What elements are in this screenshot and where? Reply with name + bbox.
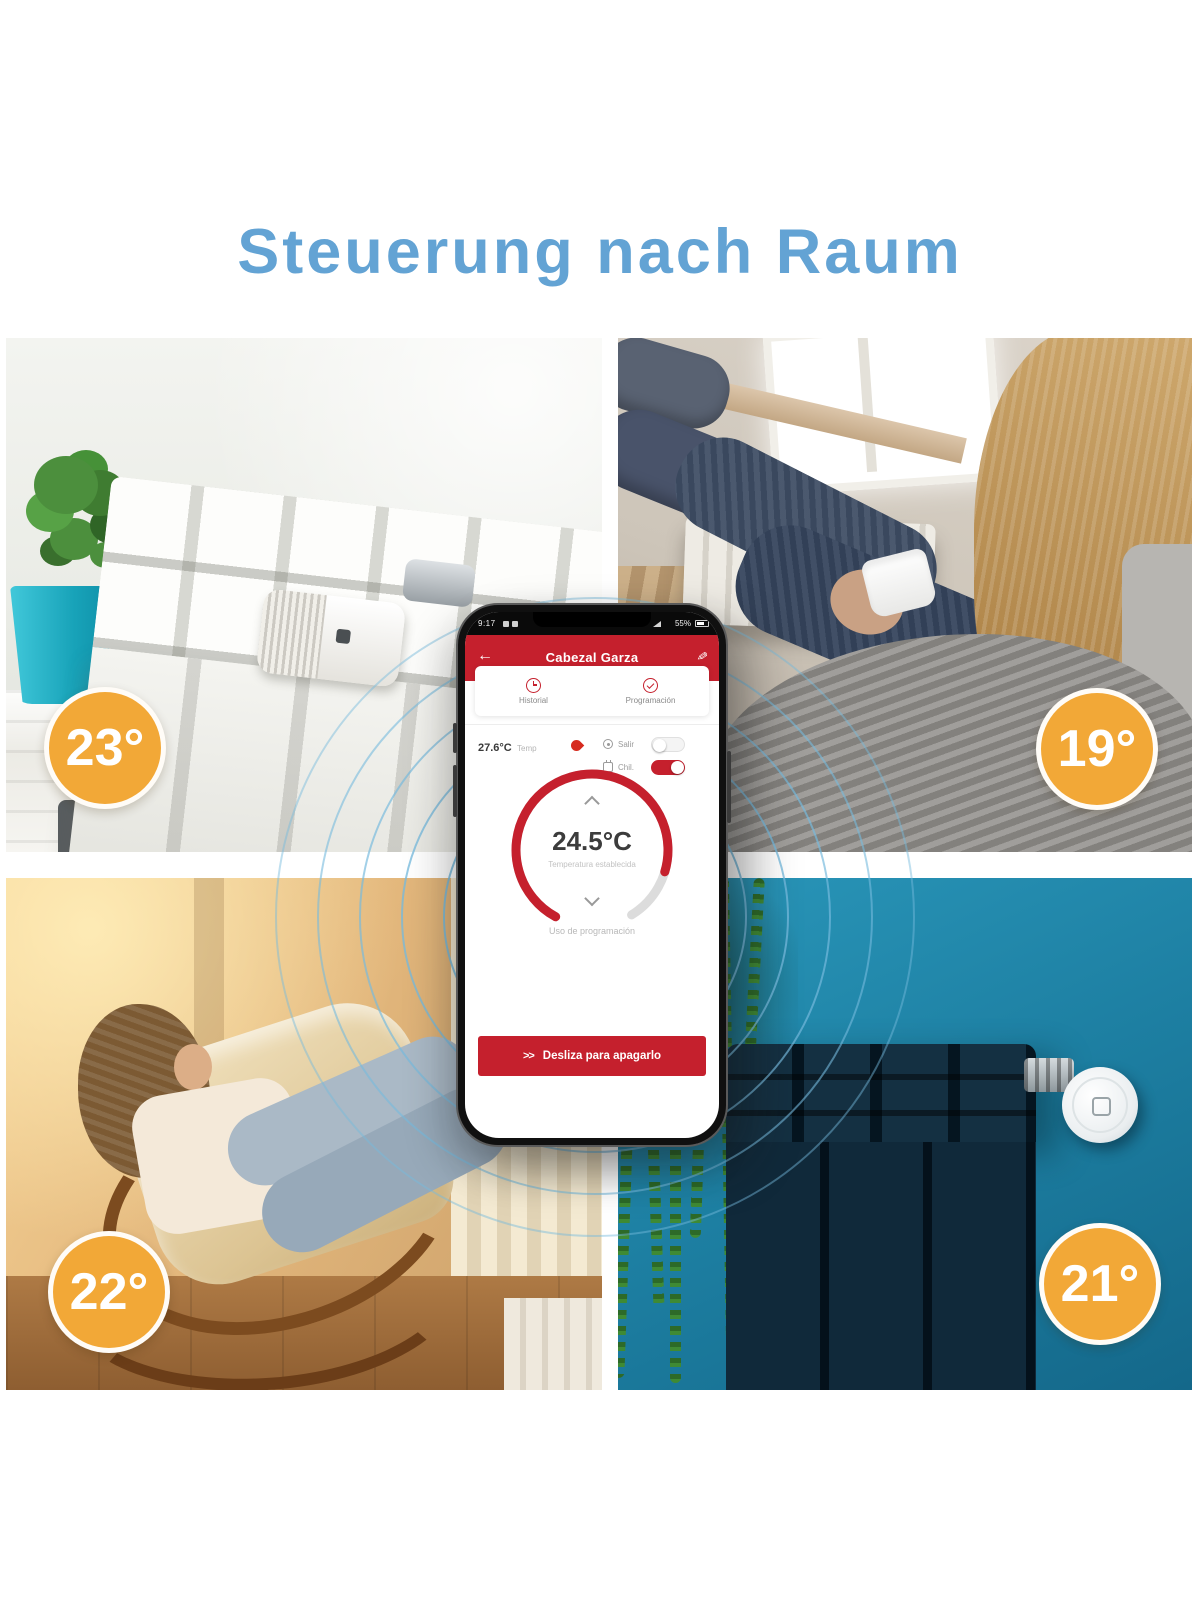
tab-programacion[interactable]: Programación xyxy=(592,666,709,716)
volume-button xyxy=(453,765,457,817)
power-button xyxy=(727,751,731,823)
smart-valve-device xyxy=(256,588,407,688)
temperature-badge: 21° xyxy=(1039,1223,1161,1345)
set-temperature-label: Temperatura establecida xyxy=(506,860,678,869)
toggle-knob xyxy=(653,739,666,752)
notification-icon xyxy=(503,621,509,627)
tab-label: Programación xyxy=(626,696,676,705)
tab-label: Historial xyxy=(519,696,548,705)
woman-face xyxy=(174,1044,212,1090)
target-icon xyxy=(603,739,613,749)
tabs-card: Historial Programación xyxy=(475,666,709,716)
signal-icon xyxy=(653,621,661,627)
app-screen: 9:17 55% ← Cabezal Garza ✎ Historial Pr xyxy=(465,612,719,1138)
valve-logo xyxy=(1092,1097,1111,1116)
program-usage-label: Uso de programación xyxy=(465,926,719,936)
smartphone: 9:17 55% ← Cabezal Garza ✎ Historial Pr xyxy=(456,603,728,1147)
radiator-pipe xyxy=(402,558,476,608)
notification-icon xyxy=(512,621,518,627)
valve-logo xyxy=(336,629,351,644)
current-temperature: 27.6°C xyxy=(478,742,512,754)
green-plant xyxy=(34,456,98,514)
heat-drop-icon xyxy=(569,738,585,754)
phone-notch xyxy=(533,612,651,627)
mode-row-salir: Salir xyxy=(603,733,715,755)
smart-valve-device xyxy=(1062,1067,1138,1143)
salir-toggle[interactable] xyxy=(651,737,685,752)
battery-percent: 55% xyxy=(675,619,691,628)
device-title: Cabezal Garza xyxy=(465,650,719,665)
slide-to-turn-off-button[interactable]: >> Desliza para apagarlo xyxy=(478,1036,706,1076)
temperature-badge: 23° xyxy=(44,687,166,809)
infographic-page: Steuerung nach Raum 23° xyxy=(0,0,1200,1600)
valve-dial-ribs xyxy=(256,588,327,678)
mode-label: Salir xyxy=(618,740,646,749)
temperature-dial[interactable]: 24.5°C Temperatura establecida xyxy=(506,764,678,936)
temperature-badge: 19° xyxy=(1036,688,1158,810)
divider xyxy=(465,724,719,725)
battery-icon xyxy=(695,620,709,627)
slide-button-label: Desliza para apagarlo xyxy=(543,1050,661,1062)
radiator-hint xyxy=(504,1298,602,1390)
temperature-badge: 22° xyxy=(48,1231,170,1353)
clock-icon xyxy=(526,678,541,693)
page-title: Steuerung nach Raum xyxy=(0,216,1200,288)
status-time: 9:17 xyxy=(478,619,496,628)
check-circle-icon xyxy=(643,678,658,693)
slide-arrows-icon: >> xyxy=(523,1050,534,1062)
tab-historial[interactable]: Historial xyxy=(475,666,592,716)
current-temperature-label: Temp xyxy=(517,744,537,753)
volume-button xyxy=(453,723,457,753)
set-temperature: 24.5°C xyxy=(506,826,678,857)
